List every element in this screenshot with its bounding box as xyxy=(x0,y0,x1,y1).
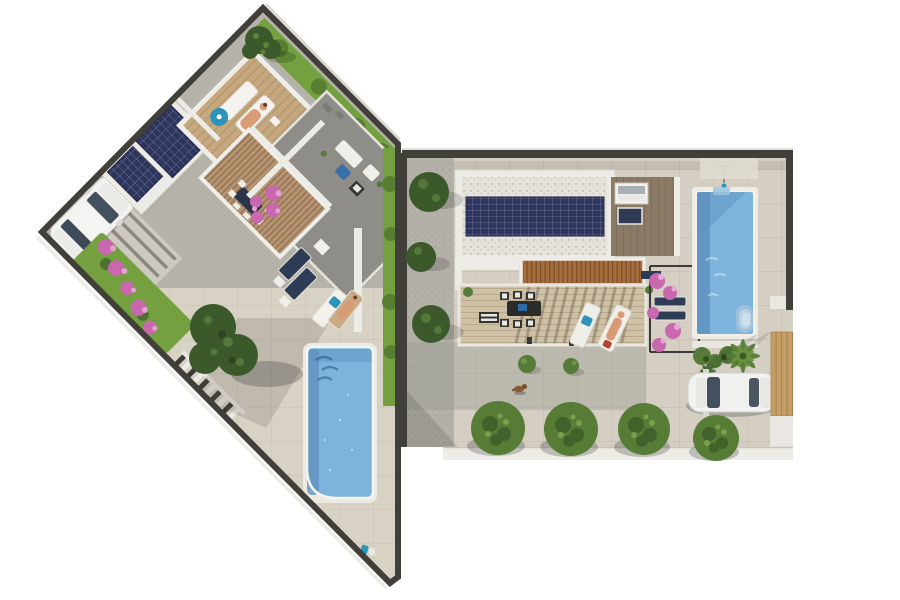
car-mirror xyxy=(703,369,709,373)
left-plot-interior xyxy=(31,12,452,588)
pool-steps xyxy=(736,305,753,333)
bench xyxy=(479,312,499,323)
blue-tray xyxy=(518,304,527,311)
palm-tree xyxy=(726,339,760,373)
left-wall xyxy=(399,153,407,447)
skylight-white xyxy=(615,183,648,204)
car-hood xyxy=(696,377,706,408)
car-roof xyxy=(721,377,748,408)
skylight-dark xyxy=(618,208,642,224)
shaded-paving xyxy=(406,342,646,410)
entrance-walkway xyxy=(700,157,758,179)
right-swimming-pool xyxy=(692,187,758,348)
right-car xyxy=(686,369,778,417)
white-wall-band xyxy=(354,228,362,332)
right-terrace xyxy=(459,285,653,353)
left-villa-plot xyxy=(31,4,452,588)
right-wall xyxy=(786,153,793,310)
parapet xyxy=(455,259,519,270)
car-windshield xyxy=(707,377,720,408)
right-plot-interior xyxy=(402,150,793,447)
white-wall-section xyxy=(770,416,793,447)
car-mirror xyxy=(703,412,709,416)
top-wall xyxy=(402,150,793,158)
aerial-render xyxy=(0,0,900,600)
scene xyxy=(0,0,900,600)
parapet xyxy=(674,177,680,256)
car-trunk xyxy=(760,377,771,408)
shower-mat xyxy=(713,187,730,195)
left-swimming-pool xyxy=(303,343,377,503)
car-rear-window xyxy=(749,378,759,407)
potted-plant xyxy=(463,287,473,297)
dog-tail xyxy=(512,389,515,392)
right-villa-plot xyxy=(399,149,793,461)
